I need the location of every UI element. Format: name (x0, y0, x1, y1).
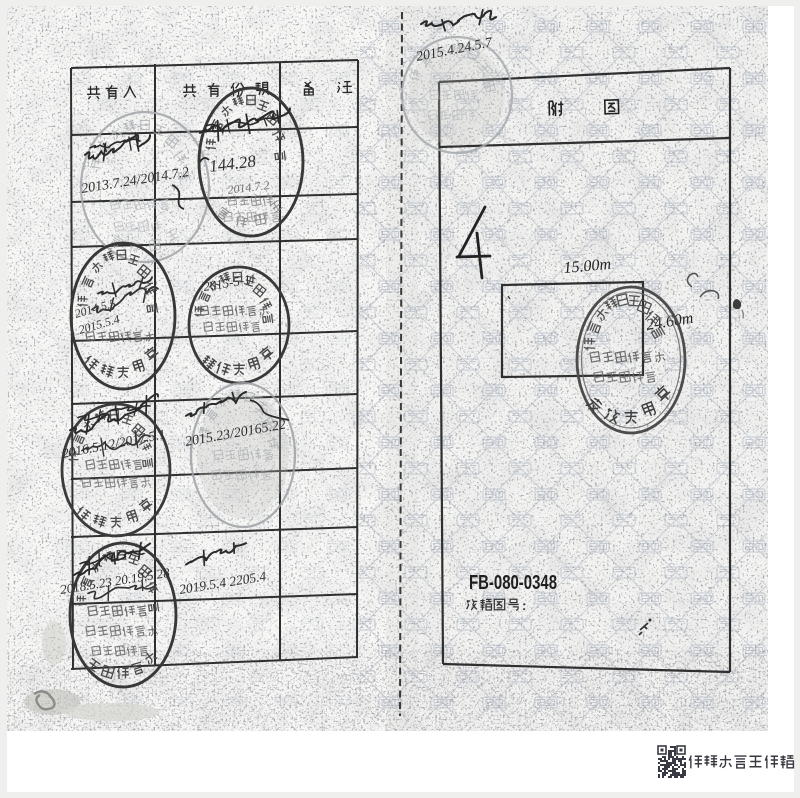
svg-text:FB-080-0348: FB-080-0348 (469, 572, 557, 594)
svg-text::: : (522, 598, 526, 613)
